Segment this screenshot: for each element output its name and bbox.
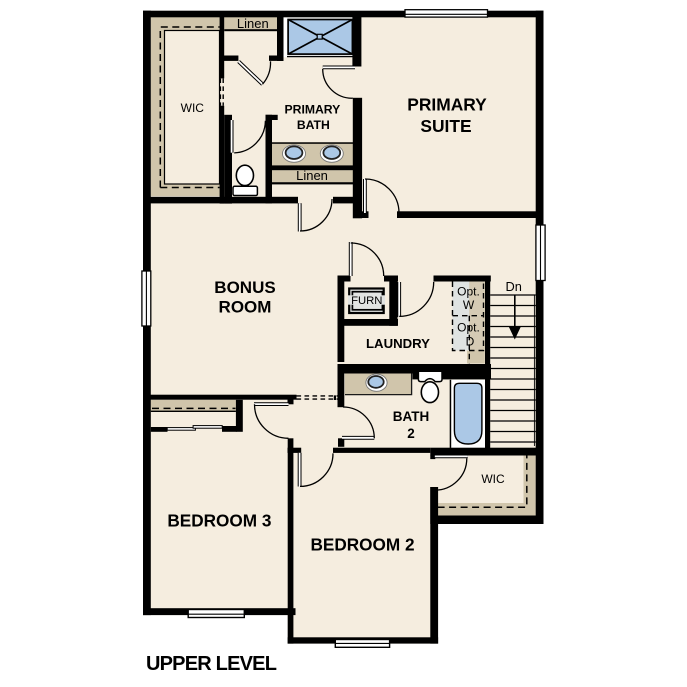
svg-text:SUITE: SUITE (420, 116, 471, 136)
svg-text:BATH: BATH (393, 409, 430, 424)
svg-text:FURN: FURN (351, 295, 382, 307)
svg-text:BEDROOM 3: BEDROOM 3 (167, 510, 271, 530)
svg-text:LAUNDRY: LAUNDRY (366, 336, 430, 351)
svg-text:BATH: BATH (297, 118, 330, 132)
svg-text:Opt.: Opt. (457, 285, 480, 299)
svg-text:Dn: Dn (506, 279, 522, 294)
svg-text:BEDROOM 2: BEDROOM 2 (310, 534, 414, 554)
svg-text:D: D (466, 335, 475, 349)
svg-text:PRIMARY: PRIMARY (285, 103, 341, 117)
svg-text:UPPER LEVEL: UPPER LEVEL (146, 653, 277, 675)
svg-text:Opt.: Opt. (457, 321, 480, 335)
svg-text:Linen: Linen (237, 16, 269, 31)
svg-text:Linen: Linen (296, 168, 328, 183)
svg-text:WIC: WIC (481, 472, 505, 486)
svg-text:W: W (463, 298, 475, 312)
svg-text:ROOM: ROOM (219, 298, 272, 317)
svg-text:BONUS: BONUS (214, 278, 275, 297)
svg-text:PRIMARY: PRIMARY (407, 95, 487, 115)
svg-text:WIC: WIC (181, 101, 205, 115)
svg-text:2: 2 (407, 426, 415, 441)
